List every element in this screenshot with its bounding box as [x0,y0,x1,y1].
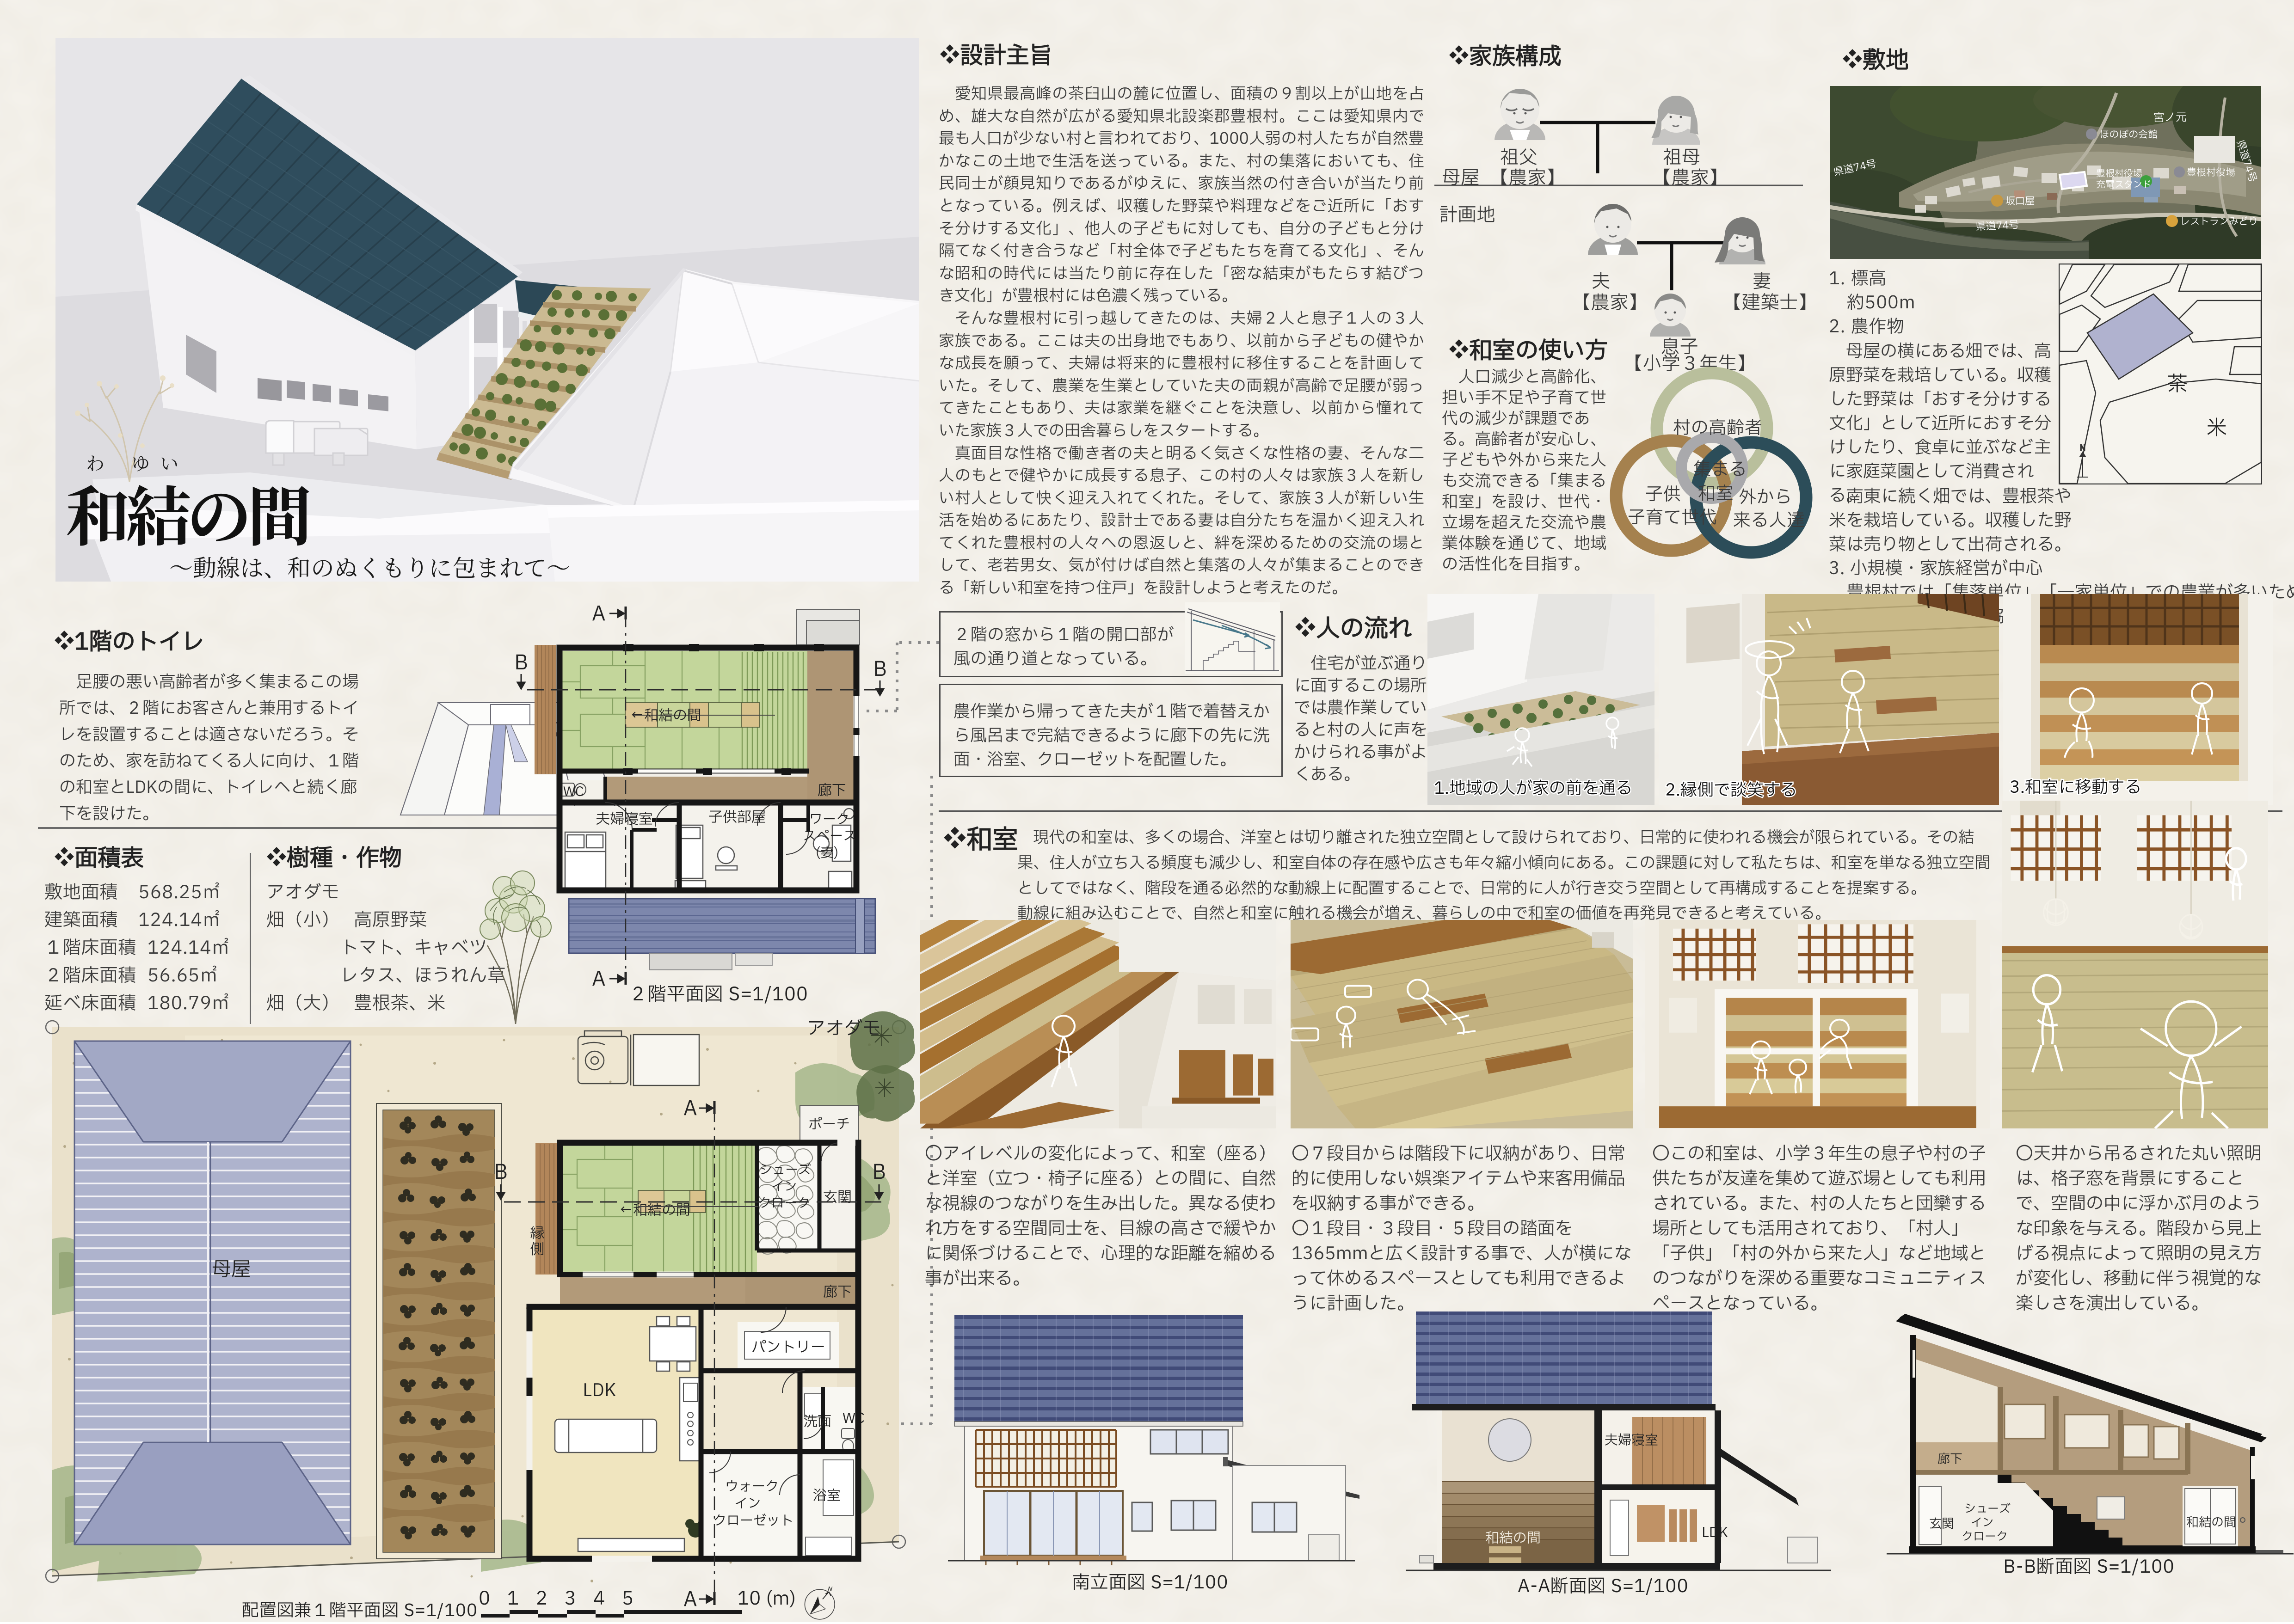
svg-text:県道74号: 県道74号 [1975,217,2019,235]
svg-text:5: 5 [622,1588,633,1613]
svg-text:WC: WC [563,783,584,802]
svg-text:1.地域の人が家の前を通る: 1.地域の人が家の前を通る [1434,776,1632,801]
svg-text:A: A [592,964,606,989]
svg-text:4: 4 [593,1588,605,1613]
svg-text:B: B [872,1158,886,1188]
svg-text:N: N [827,1587,833,1594]
svg-text:茶: 茶 [2167,369,2188,400]
svg-text:10 (m): 10 (m) [738,1588,796,1613]
svg-text:レストランみどり: レストランみどり [2180,215,2258,229]
svg-text:洗面: 洗面 [804,1412,831,1433]
svg-text:2.縁側で談笑する: 2.縁側で談笑する [1665,778,1797,803]
svg-text:豊根村役場: 豊根村役場 [2187,166,2235,180]
svg-text:1: 1 [507,1588,519,1613]
svg-text:A: A [683,1094,697,1124]
svg-text:母屋: 母屋 [212,1256,251,1285]
svg-text:ポーチ: ポーチ [808,1115,850,1135]
svg-text:LDK: LDK [583,1378,616,1404]
svg-text:廊下: 廊下 [1937,1450,1962,1469]
svg-text:夫婦寝室: 夫婦寝室 [1605,1430,1658,1451]
svg-text:0: 0 [479,1588,490,1613]
svg-text:(妻): (妻) [816,843,838,863]
svg-text:浴室: 浴室 [813,1486,841,1507]
svg-text:←和結の間: ←和結の間 [619,1200,690,1221]
svg-text:B: B [494,1158,508,1188]
svg-text:夫婦寝室: 夫婦寝室 [596,809,653,830]
svg-text:和結の間: 和結の間 [1485,1528,1541,1549]
svg-text:←和結の間: ←和結の間 [630,705,701,727]
svg-text:3.和室に移動する: 3.和室に移動する [2010,775,2141,800]
svg-text:クローゼット: クローゼット [713,1511,793,1531]
svg-text:縁側: 縁側 [527,1225,548,1257]
svg-text:クローク: クローク [1962,1528,2008,1545]
svg-text:N: N [2080,443,2085,454]
svg-text:A: A [592,599,606,630]
svg-text:和結の間: 和結の間 [2186,1513,2236,1532]
svg-text:子供部屋: 子供部屋 [708,807,766,828]
svg-text:クローク: クローク [758,1194,810,1213]
svg-text:アオダモ: アオダモ [807,1015,881,1043]
svg-text:宮ノ元: 宮ノ元 [2153,110,2187,126]
svg-text:玄関: 玄関 [1929,1514,1954,1533]
svg-text:充電スタンド: 充電スタンド [2096,178,2152,192]
svg-text:玄関: 玄関 [823,1187,852,1208]
svg-text:パントリー: パントリー [751,1337,825,1359]
svg-text:2: 2 [536,1588,547,1613]
svg-text:3: 3 [565,1588,576,1613]
svg-text:米: 米 [2207,413,2227,444]
svg-text:坂口屋: 坂口屋 [2005,195,2035,209]
svg-text:廊下: 廊下 [818,780,846,802]
svg-text:廊下: 廊下 [823,1281,852,1303]
svg-text:ほのぼの会館: ほのぼの会館 [2099,128,2158,142]
